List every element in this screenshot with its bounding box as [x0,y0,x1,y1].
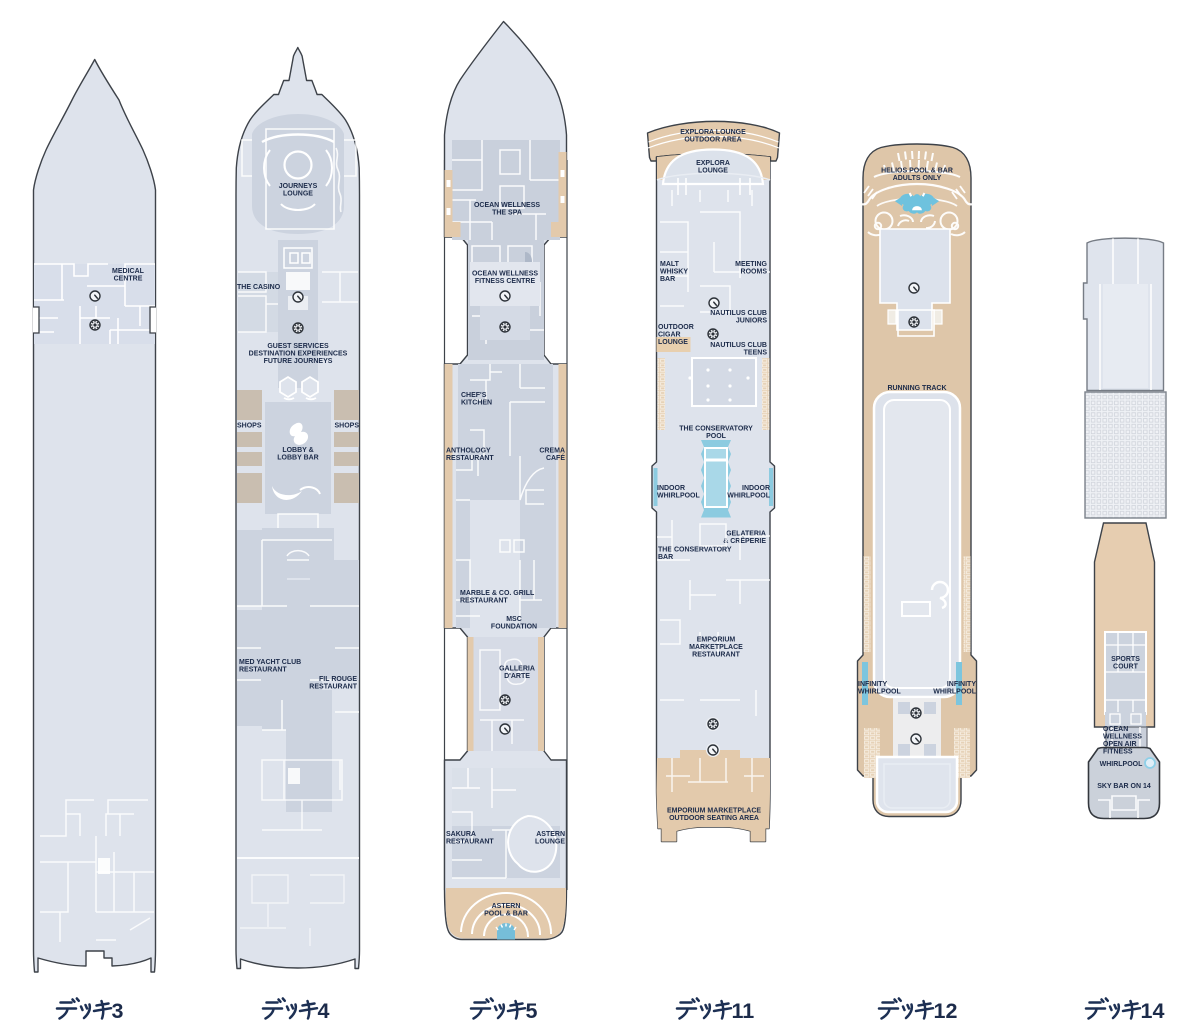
svg-text:EMPORIUM: EMPORIUM [697,637,736,644]
svg-text:OCEAN WELLNESS: OCEAN WELLNESS [474,202,540,209]
svg-text:11: 11 [732,999,755,1023]
svg-text:CHEF'S: CHEF'S [461,392,487,399]
svg-text:WHIRLPOOL: WHIRLPOOL [858,689,901,696]
svg-text:ADULTS ONLY: ADULTS ONLY [893,175,942,182]
svg-text:MEETING: MEETING [735,261,767,268]
svg-text:WHIRLPOOL: WHIRLPOOL [657,493,700,500]
svg-text:TEENS: TEENS [744,350,768,357]
svg-text:WHISKY: WHISKY [660,269,688,276]
svg-text:FUTURE JOURNEYS: FUTURE JOURNEYS [264,358,333,365]
svg-text:THE CONSERVATORY: THE CONSERVATORY [658,547,732,554]
svg-text:CIGAR: CIGAR [658,332,681,339]
svg-text:OCEAN WELLNESS: OCEAN WELLNESS [472,271,538,278]
svg-text:INFINITY: INFINITY [858,681,887,688]
svg-text:SAKURA: SAKURA [446,831,476,838]
svg-text:OCEAN: OCEAN [1103,726,1128,733]
svg-text:12: 12 [934,999,958,1023]
svg-text:OUTDOOR AREA: OUTDOOR AREA [684,137,741,144]
svg-text:MEDICAL: MEDICAL [112,268,145,275]
svg-text:POOL: POOL [706,433,727,440]
svg-text:JOURNEYS: JOURNEYS [279,183,318,190]
svg-text:CENTRE: CENTRE [114,276,143,283]
svg-text:RESTAURANT: RESTAURANT [446,455,494,462]
svg-text:WHIRLPOOL: WHIRLPOOL [933,689,976,696]
svg-text:EXPLORA LOUNGE: EXPLORA LOUNGE [680,129,746,136]
svg-text:ASTERN: ASTERN [492,903,521,910]
svg-text:INDOOR: INDOOR [742,485,770,492]
svg-text:OUTDOOR SEATING AREA: OUTDOOR SEATING AREA [669,815,759,822]
svg-text:& CRÊPERIE: & CRÊPERIE [723,536,766,545]
svg-text:JUNIORS: JUNIORS [736,318,767,325]
svg-text:LOBBY &: LOBBY & [282,447,313,454]
svg-text:MSC: MSC [506,616,522,623]
svg-text:LOUNGE: LOUNGE [698,168,728,175]
svg-text:GALLERIA: GALLERIA [499,666,535,673]
svg-text:INFINITY: INFINITY [947,681,976,688]
svg-text:LOUNGE: LOUNGE [283,191,313,198]
svg-text:COURT: COURT [1113,664,1139,671]
svg-text:CAFÉ: CAFÉ [546,453,565,462]
svg-text:HELIOS POOL & BAR: HELIOS POOL & BAR [881,168,953,175]
svg-text:WHIRLPOOL: WHIRLPOOL [1100,761,1143,768]
svg-text:RESTAURANT: RESTAURANT [239,667,287,674]
svg-text:THE CASINO: THE CASINO [237,284,281,291]
svg-text:14: 14 [1141,999,1165,1023]
svg-text:SHOPS: SHOPS [334,423,359,430]
svg-text:EMPORIUM MARKETPLACE: EMPORIUM MARKETPLACE [667,808,761,815]
svg-text:LOBBY BAR: LOBBY BAR [277,455,318,462]
svg-text:LOUNGE: LOUNGE [535,839,565,846]
svg-text:ROOMS: ROOMS [741,269,768,276]
svg-text:NAUTILUS CLUB: NAUTILUS CLUB [710,342,767,349]
svg-text:KITCHEN: KITCHEN [461,400,492,407]
svg-text:3: 3 [112,999,124,1023]
svg-text:SPORTS: SPORTS [1111,656,1140,663]
svg-text:INDOOR: INDOOR [657,485,685,492]
svg-text:FITNESS: FITNESS [1103,749,1133,756]
svg-text:FOUNDATION: FOUNDATION [491,624,537,631]
svg-text:THE CONSERVATORY: THE CONSERVATORY [679,426,753,433]
svg-text:RESTAURANT: RESTAURANT [692,652,740,659]
svg-text:ASTERN: ASTERN [536,831,565,838]
svg-text:SKY BAR ON 14: SKY BAR ON 14 [1097,783,1151,790]
svg-text:DESTINATION EXPERIENCES: DESTINATION EXPERIENCES [249,351,348,358]
svg-text:FITNESS CENTRE: FITNESS CENTRE [475,278,536,285]
svg-text:WHIRLPOOL: WHIRLPOOL [727,493,770,500]
svg-text:CREMA: CREMA [539,448,565,455]
svg-text:D'ARTE: D'ARTE [504,673,530,680]
svg-text:RESTAURANT: RESTAURANT [460,598,508,605]
svg-text:THE SPA: THE SPA [492,210,522,217]
svg-text:ANTHOLOGY: ANTHOLOGY [446,448,491,455]
svg-text:RESTAURANT: RESTAURANT [446,839,494,846]
svg-text:5: 5 [526,999,538,1023]
svg-text:POOL & BAR: POOL & BAR [484,911,528,918]
svg-text:MED YACHT CLUB: MED YACHT CLUB [239,659,301,666]
svg-text:FIL ROUGE: FIL ROUGE [319,676,357,683]
svg-text:MARBLE & CO. GRILL: MARBLE & CO. GRILL [460,590,535,597]
svg-text:RESTAURANT: RESTAURANT [309,684,357,691]
svg-text:4: 4 [318,999,330,1023]
svg-text:EXPLORA: EXPLORA [696,160,730,167]
svg-text:OPEN AIR: OPEN AIR [1103,741,1137,748]
svg-text:MARKETPLACE: MARKETPLACE [689,644,743,651]
svg-text:BAR: BAR [660,276,675,283]
svg-text:GUEST SERVICES: GUEST SERVICES [267,343,329,350]
svg-text:SHOPS: SHOPS [237,423,262,430]
svg-text:OUTDOOR: OUTDOOR [658,324,694,331]
svg-text:LOUNGE: LOUNGE [658,339,688,346]
svg-text:MALT: MALT [660,261,680,268]
svg-text:NAUTILUS CLUB: NAUTILUS CLUB [710,310,767,317]
svg-text:WELLNESS: WELLNESS [1103,734,1142,741]
